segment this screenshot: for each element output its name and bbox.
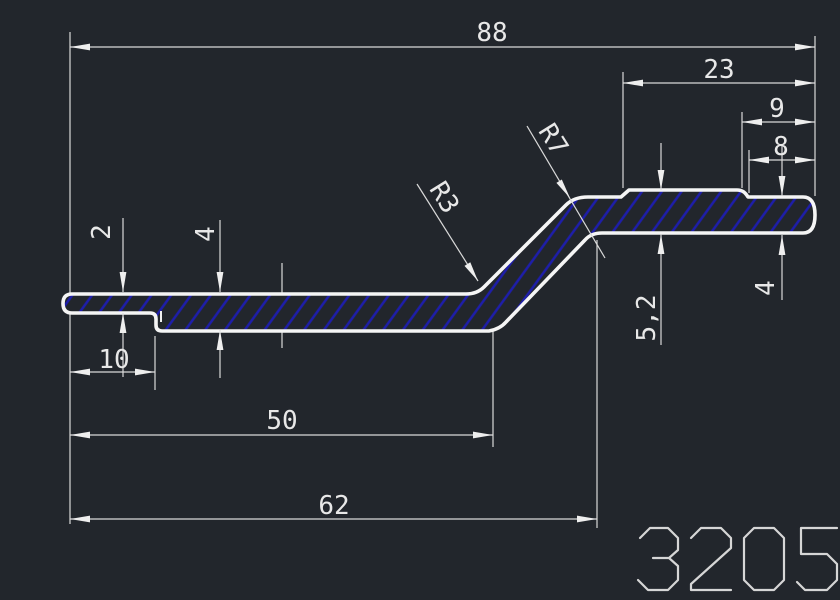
- dim-label-88: 88: [476, 18, 507, 48]
- dim-label-23: 23: [703, 55, 734, 85]
- dim-label-8: 8: [773, 132, 789, 162]
- cad-canvas[interactable]: 88 23 9 8 10 50 62 2 4 5,2 4 R3 R7: [0, 0, 840, 600]
- dim-label-9: 9: [769, 94, 785, 124]
- dim-label-4-left: 4: [191, 226, 221, 242]
- dim-label-5-2: 5,2: [632, 295, 662, 342]
- dim-label-2: 2: [87, 224, 117, 240]
- dim-label-10: 10: [98, 345, 129, 375]
- dim-label-62: 62: [318, 491, 349, 521]
- dim-label-50: 50: [266, 406, 297, 436]
- dim-label-4-right: 4: [751, 280, 781, 296]
